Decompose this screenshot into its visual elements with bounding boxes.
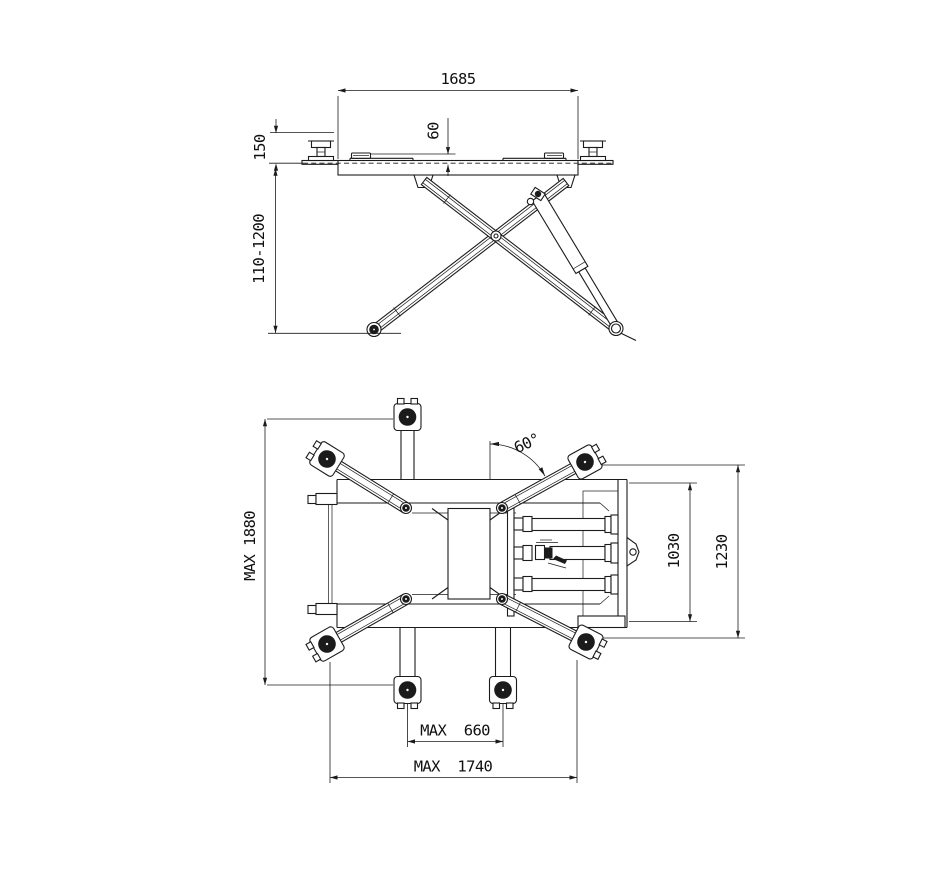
dim-label-110-1200: 110-1200 bbox=[250, 214, 268, 284]
dim-overall-width: 1230 bbox=[713, 465, 740, 638]
wheel-pad-bottom-left bbox=[394, 677, 421, 709]
dim-label-60: 60 bbox=[425, 122, 443, 140]
left-extension-plate bbox=[302, 161, 338, 165]
scissor-lift-technical-drawing: 1685 60 150 110-1200 bbox=[0, 0, 939, 872]
dim-label-1685: 1685 bbox=[441, 70, 476, 88]
plan-arm-top bbox=[394, 399, 421, 480]
arm-pivot-lower-right bbox=[497, 594, 508, 605]
wheel-pad-top bbox=[394, 399, 421, 431]
dim-lifting-range: 110-1200 bbox=[250, 169, 401, 334]
cylinder-upper-pin bbox=[535, 191, 541, 197]
plan-arm-bottom-left bbox=[394, 628, 421, 709]
left-bottom-stub bbox=[308, 606, 316, 614]
side-elevation-view: 1685 60 150 110-1200 bbox=[250, 70, 636, 341]
arm-pivot-upper-right bbox=[497, 503, 508, 514]
wheel-pad-bottom-right bbox=[490, 677, 517, 709]
dim-label-1030: 1030 bbox=[665, 533, 683, 568]
dim-pad-spread-min: MAX 660 bbox=[408, 704, 504, 747]
dim-label-max-1740: MAX 1740 bbox=[414, 758, 493, 776]
dim-label-max-1880: MAX 1880 bbox=[241, 511, 259, 581]
dim-overall-length: 1685 bbox=[338, 70, 578, 159]
dim-label-1230: 1230 bbox=[713, 534, 731, 569]
side-platform bbox=[302, 141, 613, 175]
left-top-stub bbox=[308, 496, 316, 504]
hydraulic-cylinder-top bbox=[514, 515, 618, 534]
dim-label-60deg: 60° bbox=[511, 430, 542, 457]
center-column bbox=[448, 509, 490, 600]
dim-label-max-660: MAX 660 bbox=[420, 722, 490, 740]
side-hydraulic-cylinder bbox=[527, 187, 618, 327]
right-screw-support-pad bbox=[580, 141, 606, 161]
dim-arm-swing-angle: 60° bbox=[490, 430, 545, 479]
hydraulic-cylinder-middle bbox=[514, 540, 618, 568]
platform-body bbox=[338, 161, 578, 176]
hydraulic-cylinder-bottom bbox=[514, 575, 618, 594]
right-extension-plate bbox=[578, 161, 613, 165]
side-scissor-mechanism bbox=[367, 175, 636, 341]
scissor-arm-left bbox=[421, 177, 619, 332]
dim-label-150: 150 bbox=[251, 134, 269, 160]
arm-pivot-lower-left bbox=[401, 594, 412, 605]
plan-view: MAX 1880 60° 1030 1230 bbox=[241, 399, 745, 784]
left-screw-support-pad bbox=[308, 141, 334, 161]
drawing-page: 1685 60 150 110-1200 bbox=[0, 0, 939, 872]
plan-arm-bottom-right bbox=[490, 628, 517, 709]
arm-pivot-upper-left bbox=[401, 503, 412, 514]
